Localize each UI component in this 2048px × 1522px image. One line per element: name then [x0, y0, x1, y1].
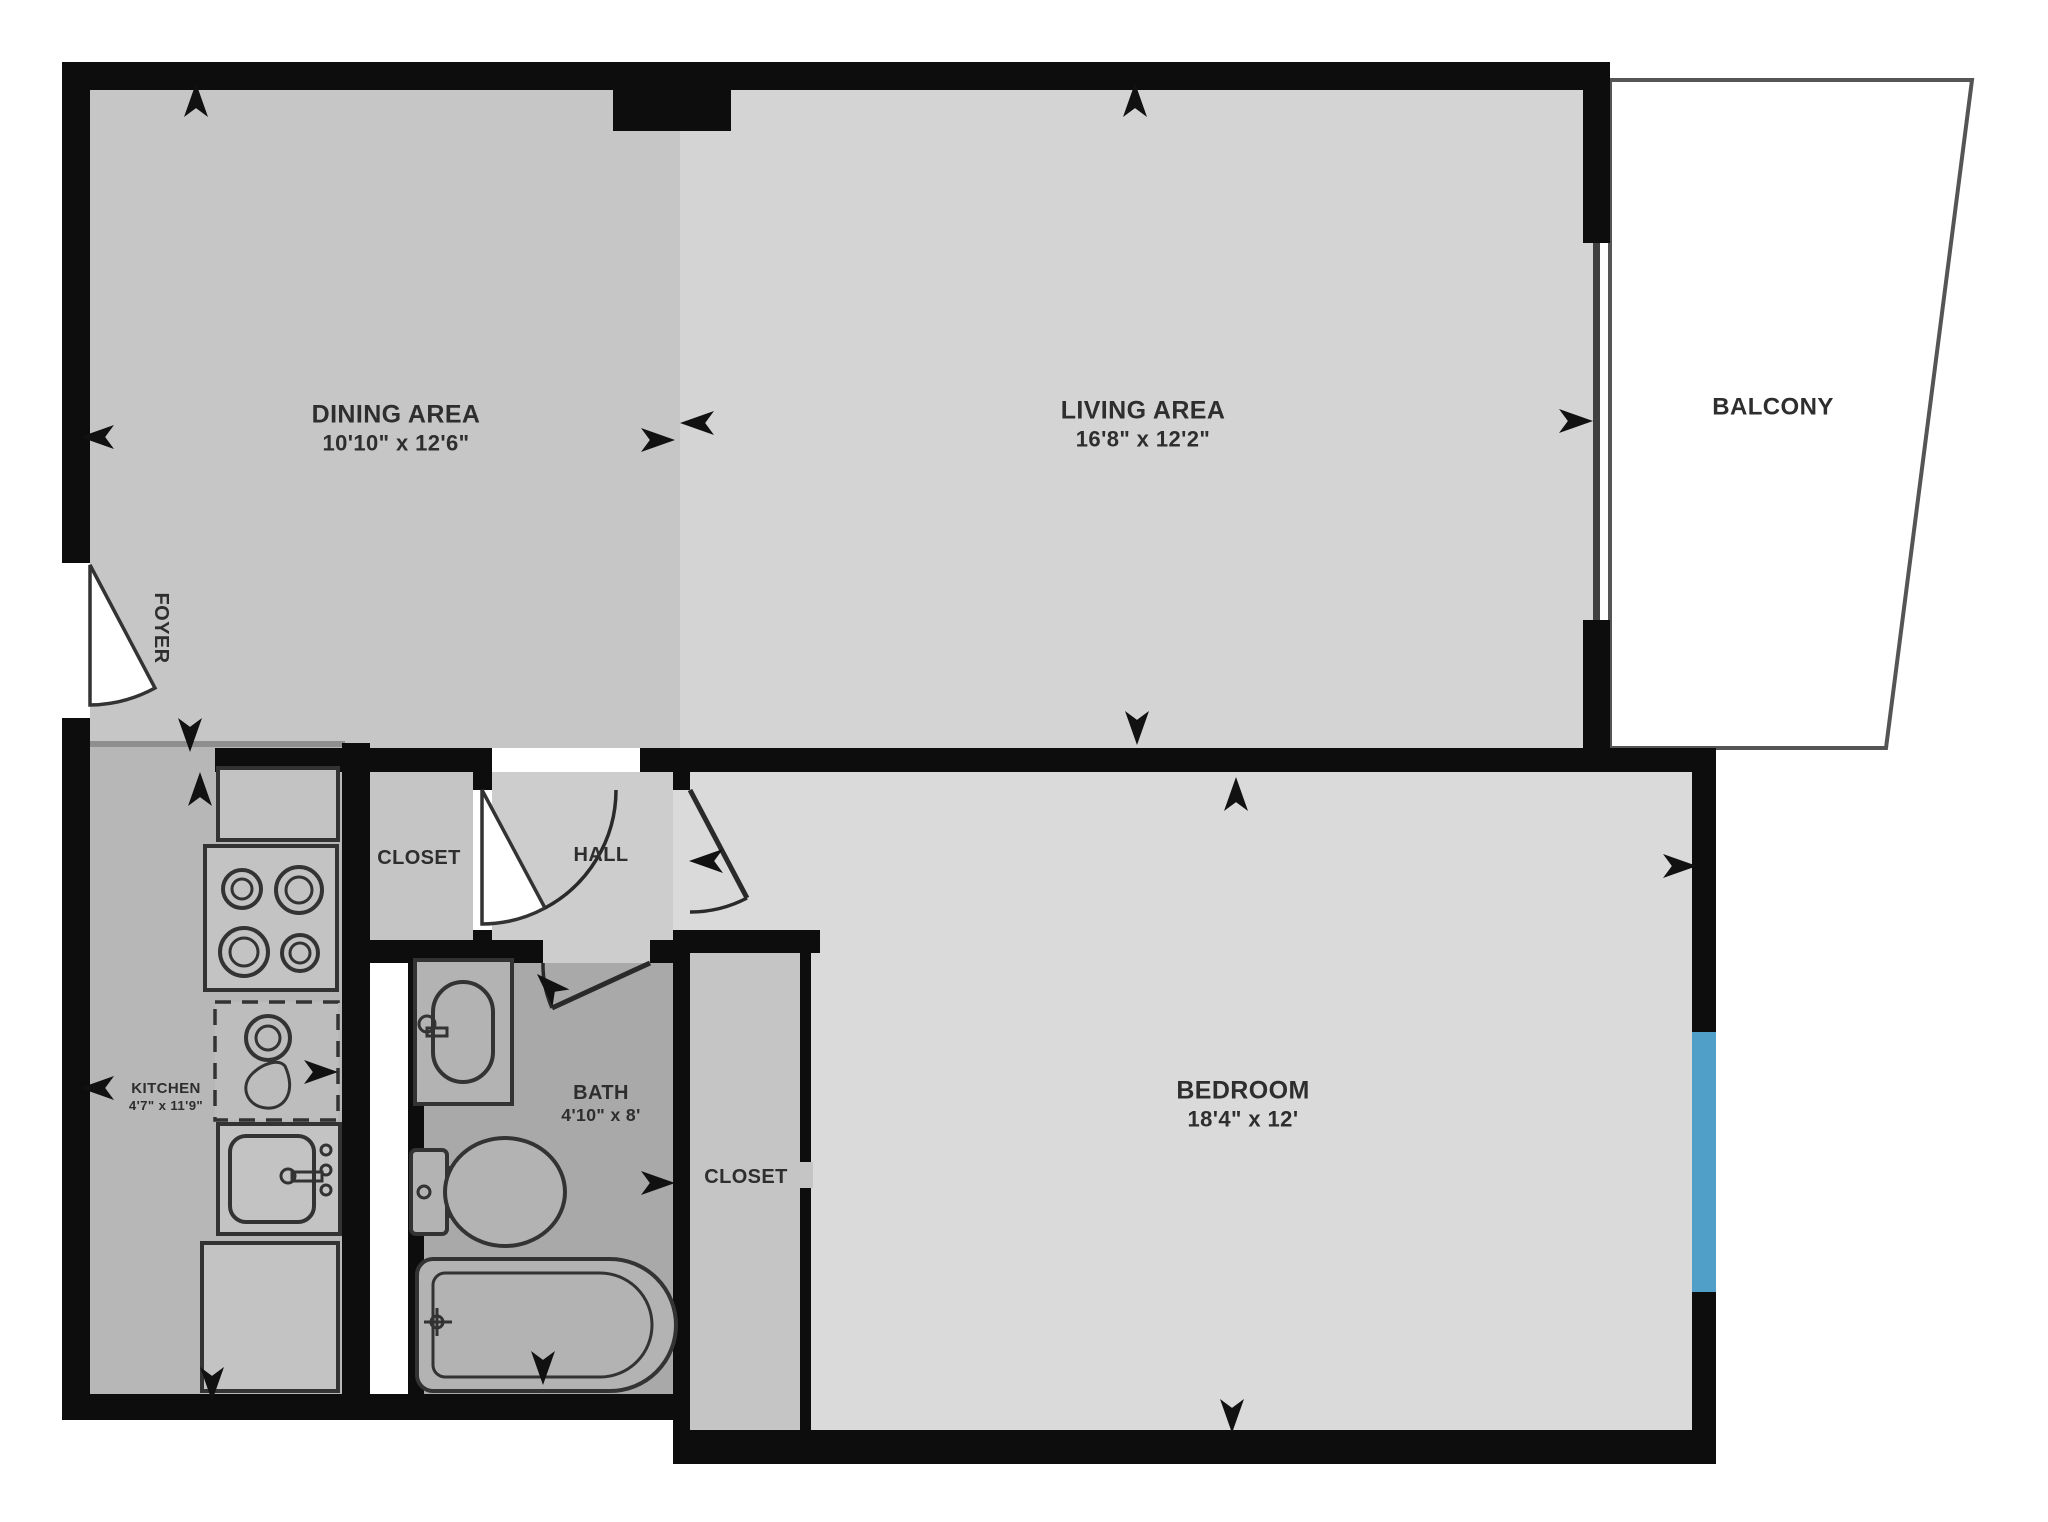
room-name: CLOSET: [377, 847, 461, 869]
living-area-label: LIVING AREA 16'8" x 12'2": [1061, 395, 1226, 452]
room-name: BEDROOM: [1176, 1076, 1309, 1104]
balcony-label: BALCONY: [1712, 392, 1833, 421]
room-name: LIVING AREA: [1061, 396, 1226, 424]
bath-label: BATH 4'10" x 8': [561, 1081, 640, 1127]
room-name: CLOSET: [704, 1166, 788, 1188]
foyer-label: FOYER: [149, 593, 173, 664]
dining-area-label: DINING AREA 10'10" x 12'6": [312, 399, 481, 456]
room-name: FOYER: [150, 593, 172, 664]
room-name: DINING AREA: [312, 400, 481, 428]
room-name: KITCHEN: [131, 1080, 200, 1097]
toilet-icon: [411, 1138, 565, 1246]
bedroom-label: BEDROOM 18'4" x 12': [1176, 1075, 1309, 1132]
upper-counter-icon: [218, 768, 338, 840]
kitchen-label: KITCHEN 4'7" x 11'9": [129, 1080, 203, 1114]
room-dims: 18'4" x 12': [1176, 1106, 1309, 1133]
room-name: BALCONY: [1712, 393, 1833, 420]
room-dims: 10'10" x 12'6": [312, 430, 481, 457]
dishwasher-icon: [215, 1002, 338, 1120]
kitchen-sink-icon: [218, 1124, 340, 1234]
room-name: BATH: [573, 1082, 629, 1104]
hall-label: HALL: [574, 843, 629, 867]
room-name: HALL: [574, 844, 629, 866]
bedroom-closet-label: CLOSET: [704, 1165, 788, 1189]
hall-closet-label: CLOSET: [377, 846, 461, 870]
bath-vanity-icon: [415, 960, 512, 1104]
stove-icon: [205, 846, 337, 990]
entry-door-icon: [90, 565, 155, 705]
room-dims: 4'7" x 11'9": [129, 1098, 203, 1114]
room-dims: 16'8" x 12'2": [1061, 426, 1226, 453]
room-dims: 4'10" x 8': [561, 1105, 640, 1126]
fixtures-layer: [0, 0, 2048, 1522]
floor-plan: DINING AREA 10'10" x 12'6" LIVING AREA 1…: [0, 0, 2048, 1522]
